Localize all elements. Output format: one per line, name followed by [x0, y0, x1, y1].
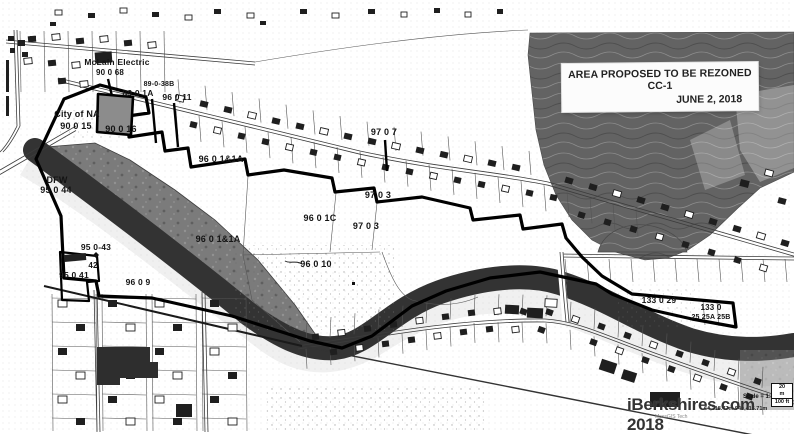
building-footprint	[173, 418, 182, 425]
building-footprint	[589, 338, 598, 346]
building-footprint	[434, 8, 440, 13]
building-footprint	[52, 34, 61, 41]
building-footprint	[621, 369, 637, 383]
building-footprint	[357, 159, 365, 166]
parcel-label: 133 0 29	[642, 295, 677, 305]
building-footprint	[401, 12, 407, 17]
building-footprint	[199, 100, 208, 108]
building-footprint	[465, 12, 471, 17]
building-footprint	[460, 329, 468, 336]
building-footprint	[260, 21, 266, 25]
building-footprint	[76, 372, 85, 379]
parcel-label: McLain Electric	[84, 57, 149, 67]
building-footprint	[343, 133, 352, 141]
parcel-label: 42	[88, 261, 98, 270]
building-footprint	[356, 344, 364, 351]
building-footprint	[453, 176, 461, 183]
building-footprint	[309, 149, 317, 156]
building-footprint	[756, 232, 765, 240]
building-footprint	[6, 60, 9, 92]
building-footprint	[176, 404, 192, 417]
building-footprint	[332, 13, 339, 18]
parcel-label: 95 0 44	[40, 185, 71, 195]
building-footprint	[214, 9, 221, 14]
parcel-label: 96 0 11	[162, 92, 191, 102]
building-footprint	[152, 12, 159, 17]
building-footprint	[477, 181, 485, 188]
building-footprint	[108, 300, 117, 307]
building-footprint	[55, 10, 62, 15]
building-footprint	[124, 40, 133, 47]
watermark: iBerkshires.com 2018	[627, 395, 794, 435]
building-footprint	[777, 197, 786, 205]
building-footprint	[429, 172, 437, 179]
building-footprint	[237, 132, 245, 139]
building-footprint	[120, 8, 127, 13]
building-footprint	[58, 78, 67, 85]
building-footprint	[210, 348, 219, 355]
building-footprint	[228, 372, 237, 379]
building-footprint	[333, 154, 341, 161]
building-footprint	[126, 324, 135, 331]
building-footprint	[505, 305, 519, 315]
building-footprint	[228, 418, 237, 425]
building-footprint	[30, 36, 36, 41]
rezone-title-box: AREA PROPOSED TO BE REZONED CC-1 JUNE 2,…	[562, 62, 758, 112]
building-footprint	[48, 60, 57, 67]
building-footprint	[330, 349, 338, 356]
building-footprint	[108, 396, 117, 403]
building-footprint	[210, 396, 219, 403]
parcel-label: 133 0	[700, 303, 721, 312]
building-footprint	[76, 324, 85, 331]
building-footprint	[405, 168, 413, 175]
building-footprint	[463, 155, 472, 163]
building-footprint	[599, 359, 618, 374]
building-footprint	[8, 36, 14, 41]
parcel-label: 97 0 3	[365, 190, 391, 200]
building-footprint	[545, 299, 557, 308]
building-footprint	[155, 348, 164, 355]
building-footprint	[382, 340, 390, 347]
scanned-rezoning-map: McLain Electric90 0 6889-0-38B89 0 1A96 …	[0, 0, 794, 446]
building-footprint	[391, 142, 400, 150]
building-footprint	[173, 372, 182, 379]
building-footprint	[442, 313, 450, 320]
building-footprint	[719, 383, 728, 391]
building-footprint	[416, 317, 424, 324]
building-footprint	[525, 189, 533, 196]
building-footprint	[732, 225, 741, 233]
building-footprint	[511, 164, 520, 172]
building-footprint	[338, 329, 346, 336]
building-footprint	[364, 325, 372, 332]
building-footprint	[434, 332, 442, 339]
building-footprint	[247, 13, 254, 18]
parcel-label: 89 0 1A	[122, 88, 153, 98]
building-footprint	[285, 144, 293, 151]
building-footprint	[22, 52, 28, 57]
building-footprint	[210, 300, 219, 307]
building-footprint	[512, 326, 520, 333]
building-footprint	[368, 9, 375, 14]
building-footprint	[24, 58, 33, 65]
building-footprint	[72, 62, 81, 69]
parcel-label: 96 0 1&1A	[199, 154, 244, 164]
building-footprint	[415, 147, 424, 155]
parcel-label: 90 0 16	[105, 124, 136, 134]
building-footprint	[759, 264, 767, 272]
building-footprint	[148, 42, 157, 49]
building-footprint	[501, 185, 509, 192]
building-footprint	[439, 151, 448, 159]
parcel-label: 97 0 3	[353, 221, 379, 231]
building-footprint	[6, 96, 9, 116]
building-footprint	[271, 117, 280, 125]
building-footprint	[213, 127, 221, 134]
rezone-date: JUNE 2, 2018	[562, 93, 758, 107]
parcel-label: DFW	[46, 175, 67, 185]
parcel-label: 96 0 1C	[304, 213, 337, 223]
factory-building	[97, 347, 158, 385]
building-footprint	[319, 128, 328, 136]
building-footprint	[189, 121, 197, 128]
building-footprint	[58, 348, 67, 355]
building-footprint	[312, 333, 320, 340]
parcel-label: 90 0 68	[96, 68, 124, 77]
building-footprint	[185, 15, 192, 20]
building-footprint	[468, 309, 476, 316]
parcel-label: 25 25A 25B	[691, 314, 730, 321]
building-footprint	[173, 324, 182, 331]
building-footprint	[18, 40, 25, 46]
building-footprint	[10, 48, 15, 53]
building-footprint	[733, 256, 741, 264]
building-footprint	[50, 22, 56, 26]
parcel-label: 96 0 10	[300, 259, 331, 269]
building-footprint	[408, 336, 416, 343]
building-footprint	[247, 112, 256, 120]
building-footprint	[223, 106, 232, 114]
building-footprint	[487, 159, 496, 167]
building-footprint	[228, 324, 237, 331]
scale-bar-meters-value: 20	[772, 384, 792, 391]
parcel-label: City of NA	[54, 109, 100, 119]
parcel-label: 96 0 1&1A	[196, 234, 241, 244]
building-footprint	[126, 418, 135, 425]
building-footprint	[494, 308, 502, 315]
rezone-title: AREA PROPOSED TO BE REZONED CC-1	[562, 67, 758, 93]
building-footprint	[58, 396, 67, 403]
building-footprint	[88, 13, 95, 18]
building-footprint	[80, 81, 89, 88]
building-footprint	[527, 308, 544, 319]
building-footprint	[155, 396, 164, 403]
building-footprint	[76, 418, 85, 425]
building-footprint	[707, 249, 715, 257]
building-footprint	[497, 9, 503, 14]
building-footprint	[300, 9, 307, 14]
building-footprint	[537, 326, 546, 334]
building-footprint	[295, 123, 304, 131]
building-footprint	[486, 326, 494, 333]
parcel-label: 95 0-43	[81, 242, 111, 252]
building-footprint	[76, 38, 85, 45]
parcel-label: 97 0 7	[371, 127, 397, 137]
parcel-label: 90 0 15	[60, 121, 91, 131]
building-footprint	[780, 239, 789, 247]
parcel-label: 89-0-38B	[144, 81, 175, 88]
parcel-label: 95 0 41	[59, 270, 89, 280]
parcel-label: 96 0 9	[126, 277, 151, 287]
building-footprint	[100, 36, 109, 43]
